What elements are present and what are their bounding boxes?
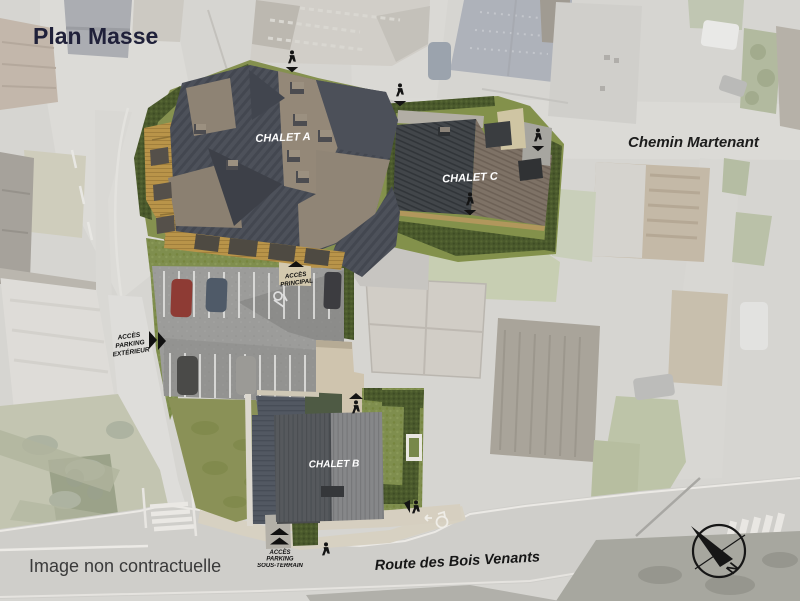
svg-text:ACCÈS: ACCÈS xyxy=(268,548,290,556)
svg-text:Image non contractuelle: Image non contractuelle xyxy=(29,556,221,576)
svg-text:PARKING: PARKING xyxy=(266,557,294,563)
svg-text:CHALET A: CHALET A xyxy=(255,131,311,145)
svg-text:Chemin Martenant: Chemin Martenant xyxy=(628,134,760,151)
svg-text:Plan Masse: Plan Masse xyxy=(33,23,158,49)
svg-text:CHALET B: CHALET B xyxy=(309,459,360,471)
svg-text:SOUS-TERRAIN: SOUS-TERRAIN xyxy=(257,563,303,569)
